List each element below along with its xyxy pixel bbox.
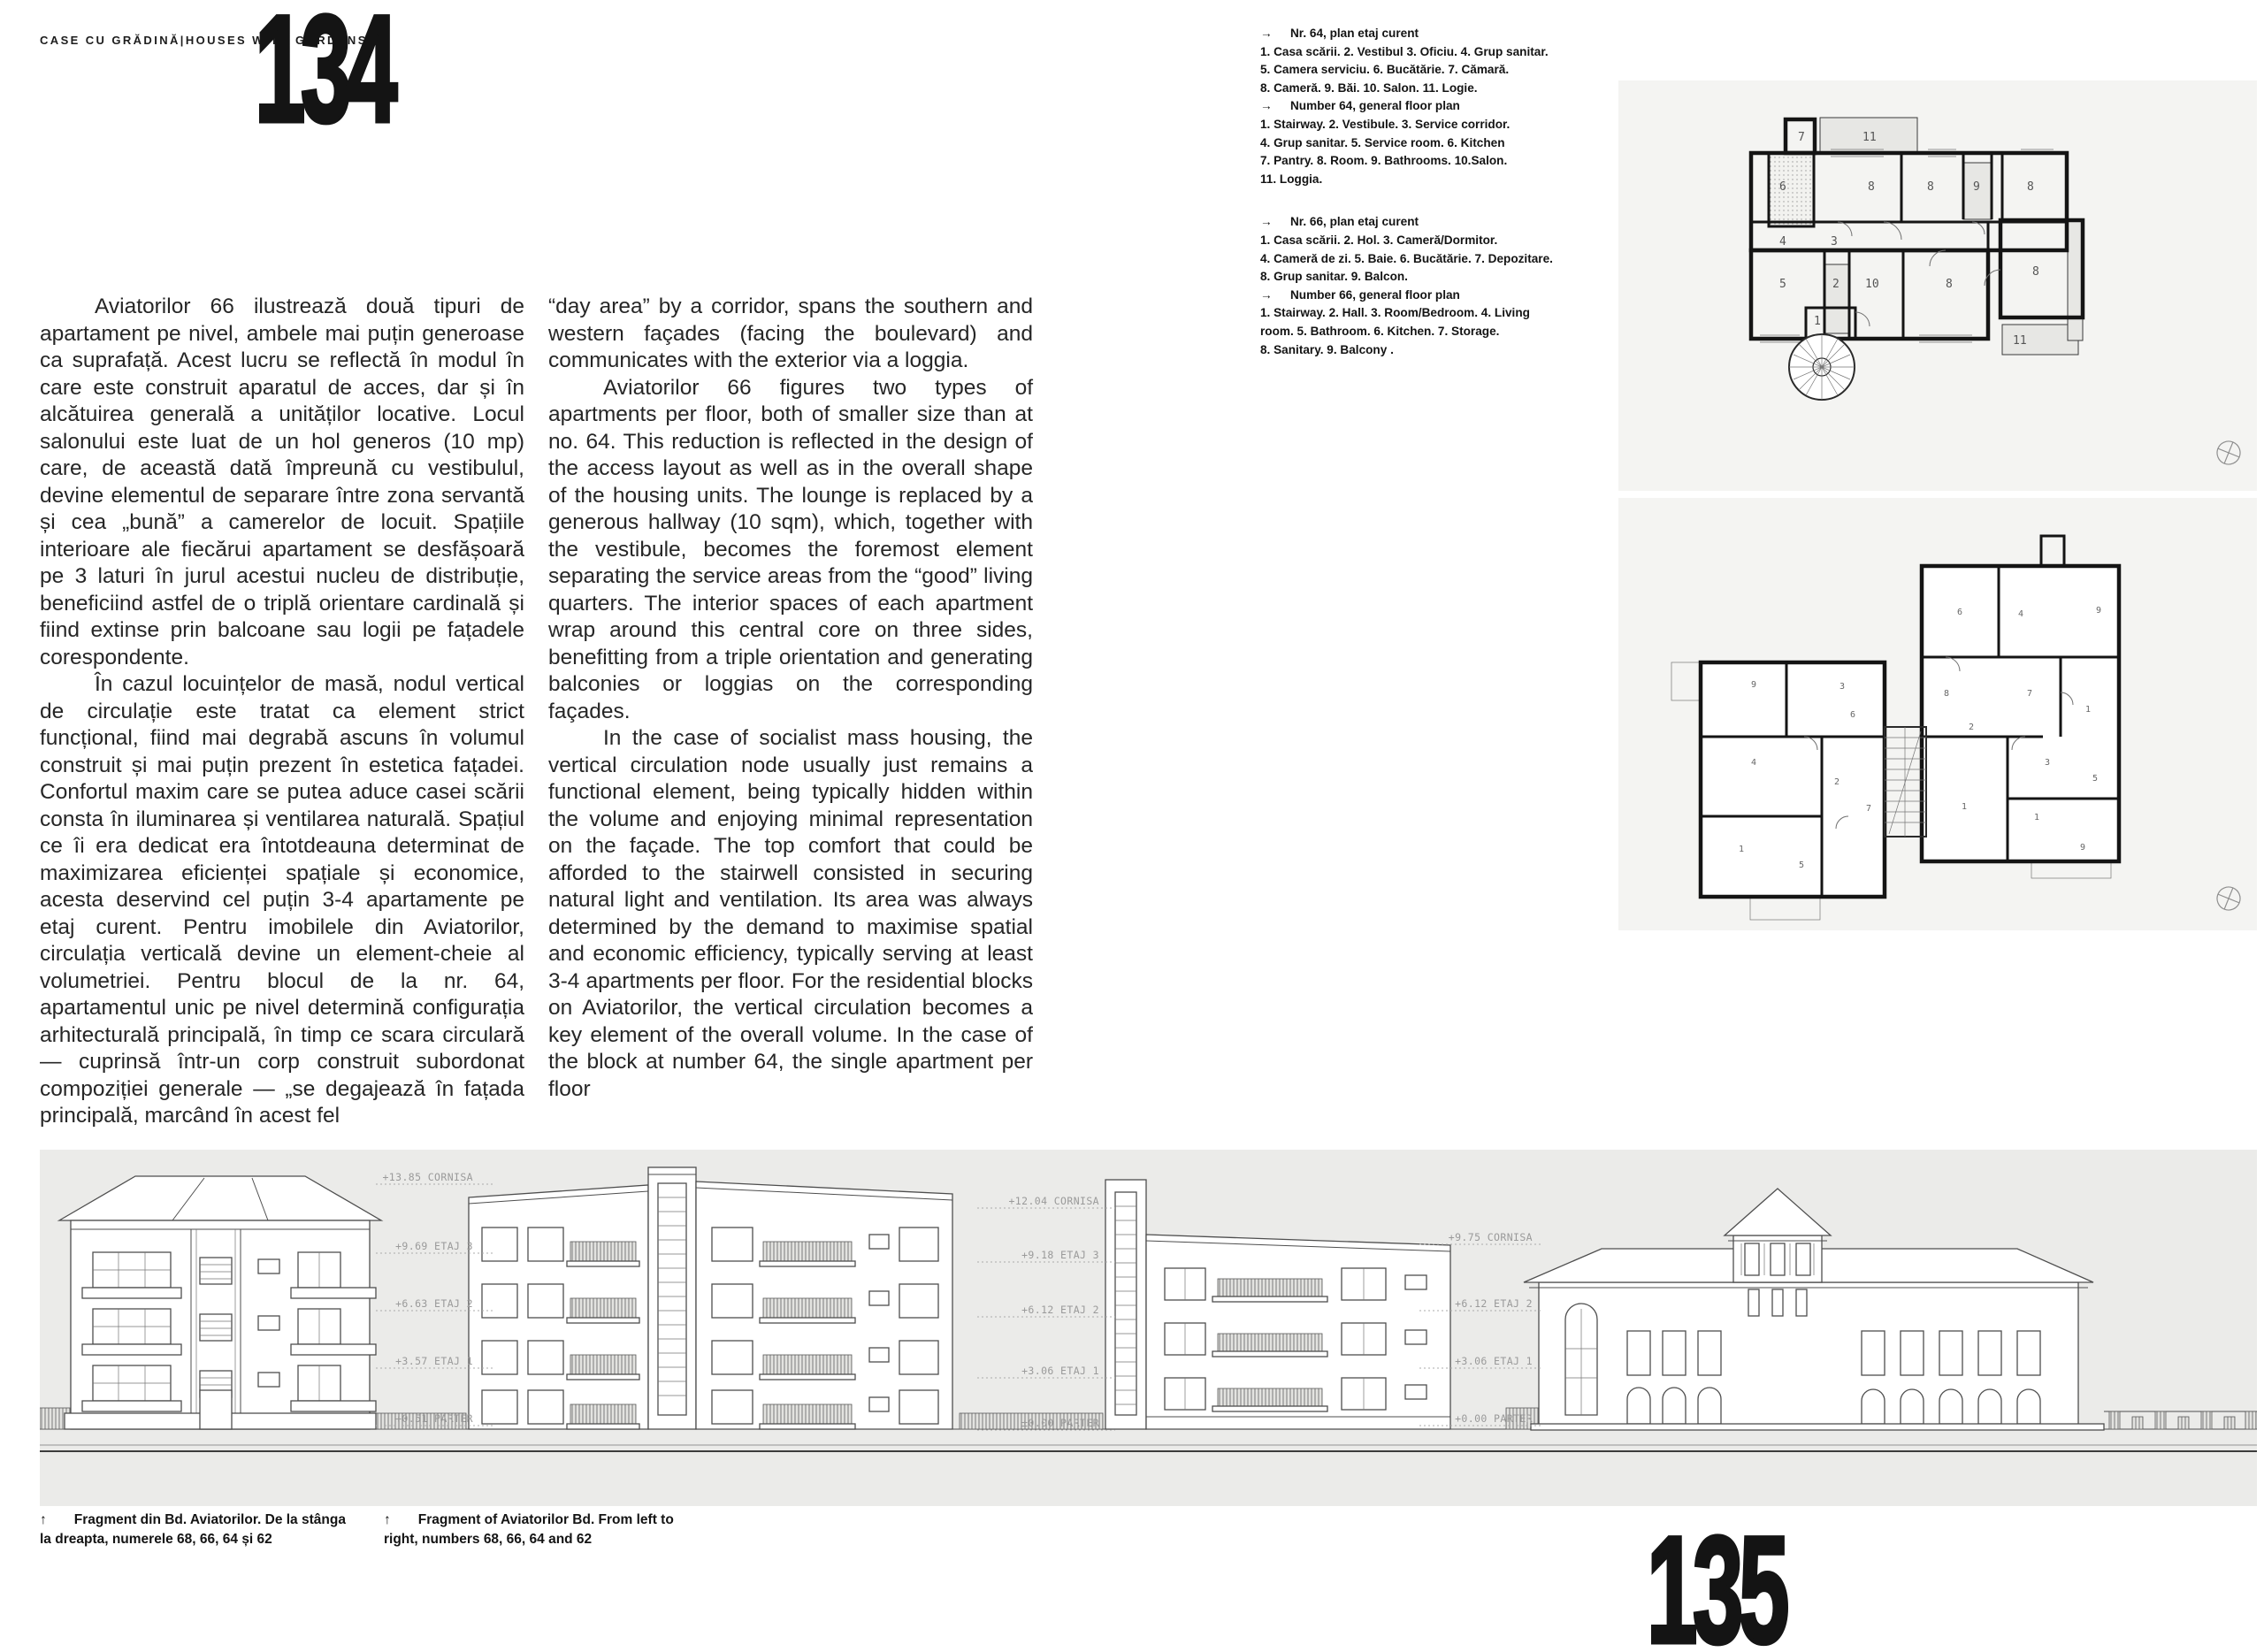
- room-number: 4: [1779, 235, 1786, 249]
- caption-line: la dreapta, numerele 68, 66, 64 și 62: [40, 1530, 395, 1549]
- level-labels-64: +12.04 CORNISA +9.18 ETAJ 3 +6.12 ETAJ 2…: [977, 1195, 1115, 1430]
- room-2-tint: [1824, 264, 1849, 333]
- svg-text:+6.12 ETAJ 2: +6.12 ETAJ 2: [1455, 1297, 1533, 1310]
- svg-text:+0.51 PARTER: +0.51 PARTER: [395, 1412, 473, 1425]
- building-62: [1524, 1189, 2104, 1430]
- room-number: 2: [1832, 278, 1839, 291]
- figure-caption-romanian: ↑ Fragment din Bd. Aviatorilor. De la st…: [40, 1511, 395, 1549]
- legend-line: → Nr. 66, plan etaj curent: [1260, 213, 1607, 232]
- room-number: 7: [2027, 689, 2032, 699]
- floor-plan-64-panel: 7 11 6 8 8 9 8 4 3 5 2 10 8 8 1 11: [1618, 80, 2257, 491]
- room-number: 5: [1799, 860, 1804, 870]
- text-column-english: “day area” by a corridor, spans the sout…: [548, 294, 1033, 1103]
- ground-arched-doors: [1627, 1388, 1721, 1424]
- svg-text:±0.00 PARTER: ±0.00 PARTER: [1021, 1417, 1099, 1429]
- room-number: 8: [1944, 689, 1949, 699]
- loggia-strip-right: [2068, 220, 2083, 340]
- north-compass-icon: [2214, 883, 2244, 914]
- legend-line: 8. Cameră. 9. Băi. 10. Salon. 11. Logie.: [1260, 80, 1607, 98]
- room-number: 6: [1850, 710, 1855, 720]
- balcony: [1671, 662, 1701, 700]
- legend-plan-64: → Nr. 64, plan etaj curent1. Casa scării…: [1260, 25, 1607, 188]
- room-number: 6: [1957, 608, 1962, 617]
- room-number: 8: [1868, 180, 1875, 194]
- room-number: 9: [2080, 843, 2085, 853]
- balcony: [1750, 897, 1820, 920]
- legend-line: 4. Cameră de zi. 5. Baie. 6. Bucătărie. …: [1260, 250, 1607, 269]
- page-number-135: 135: [1647, 1514, 1785, 1652]
- svg-text:+9.18 ETAJ 3: +9.18 ETAJ 3: [1021, 1249, 1099, 1261]
- room-number: 11: [2013, 334, 2027, 348]
- elevation-drawing: +13.85 CORNISA +9.69 ETAJ 3 +6.63 ETAJ 2…: [40, 1150, 2257, 1506]
- legend-line: 1. Stairway. 2. Hall. 3. Room/Bedroom. 4…: [1260, 304, 1607, 323]
- caption-line: right, numbers 68, 66, 64 and 62: [384, 1530, 730, 1549]
- svg-text:+3.06 ETAJ 1: +3.06 ETAJ 1: [1455, 1355, 1533, 1367]
- svg-text:+9.69 ETAJ 3: +9.69 ETAJ 3: [395, 1240, 473, 1252]
- room-number: 1: [1962, 802, 1967, 812]
- room-number: 8: [2027, 180, 2034, 194]
- north-compass-icon: [2214, 438, 2244, 468]
- book-spread: CASE CU GRĂDINĂ|HOUSES WITH GARDENS 134 …: [0, 0, 2264, 1652]
- floor-plan-66-panel: 6 4 9 8 7 1 2 3 1 1 5 9 9 3 4 6 2 7 1 5: [1618, 498, 2257, 930]
- floor-plan-66-drawing: 6 4 9 8 7 1 2 3 1 1 5 9 9 3 4 6 2 7 1 5: [1618, 498, 2257, 930]
- room-number: 10: [1865, 278, 1879, 291]
- legend-line: room. 5. Bathroom. 6. Kitchen. 7. Storag…: [1260, 323, 1607, 341]
- room-number: 8: [2032, 265, 2039, 279]
- legend-line: → Number 64, general floor plan: [1260, 97, 1607, 116]
- left-wing-walls: [1701, 662, 1885, 897]
- room-number: 11: [1862, 131, 1877, 144]
- tower-windows: [1741, 1243, 1814, 1275]
- room-number: 6: [1779, 180, 1786, 194]
- room-number: 8: [1927, 180, 1934, 194]
- legend-line: → Nr. 64, plan etaj curent: [1260, 25, 1607, 43]
- room-number: 1: [2085, 705, 2091, 715]
- caption-line: ↑ Fragment din Bd. Aviatorilor. De la st…: [40, 1511, 395, 1530]
- svg-text:+9.75 CORNISA: +9.75 CORNISA: [1449, 1231, 1533, 1243]
- elevation-panel: +13.85 CORNISA +9.69 ETAJ 3 +6.63 ETAJ 2…: [40, 1150, 2257, 1506]
- paragraph: În cazul locuințelor de masă, nodul vert…: [40, 671, 524, 1130]
- room-number: 3: [1839, 682, 1845, 692]
- room-number: 4: [2018, 609, 2023, 619]
- room-number: 3: [2045, 758, 2050, 768]
- page-number-134: 134: [255, 0, 393, 145]
- building-66: [469, 1167, 952, 1429]
- garden-fence: [2104, 1411, 2257, 1429]
- spiral-stair: [1789, 334, 1855, 400]
- room-number: 1: [2034, 813, 2039, 822]
- text-column-romanian: Aviatorilor 66 ilustrează două tipuri de…: [40, 294, 524, 1130]
- paragraph: Aviatorilor 66 figures two types of apar…: [548, 375, 1033, 726]
- room-number: 9: [2096, 606, 2101, 616]
- legend-line: 11. Loggia.: [1260, 171, 1607, 189]
- room-number: 9: [1973, 180, 1980, 194]
- plan-legends: → Nr. 64, plan etaj curent1. Casa scării…: [1260, 25, 1607, 384]
- svg-text:+12.04 CORNISA: +12.04 CORNISA: [1008, 1195, 1099, 1207]
- svg-text:+3.57 ETAJ 1: +3.57 ETAJ 1: [395, 1355, 473, 1367]
- room-number: 1: [1739, 845, 1744, 854]
- building-68: [59, 1176, 381, 1429]
- legend-line: 8. Sanitary. 9. Balcony .: [1260, 341, 1607, 360]
- legend-line: 8. Grup sanitar. 9. Balcon.: [1260, 268, 1607, 287]
- room-number: 7: [1866, 804, 1871, 814]
- legend-line: 5. Camera serviciu. 6. Bucătărie. 7. Căm…: [1260, 61, 1607, 80]
- legend-plan-66: → Nr. 66, plan etaj curent1. Casa scării…: [1260, 213, 1607, 359]
- room-number: 2: [1834, 777, 1839, 787]
- svg-text:+3.06 ETAJ 1: +3.06 ETAJ 1: [1021, 1365, 1099, 1377]
- paragraph: Aviatorilor 66 ilustrează două tipuri de…: [40, 294, 524, 671]
- legend-line: 7. Pantry. 8. Room. 9. Bathrooms. 10.Sal…: [1260, 152, 1607, 171]
- legend-line: 1. Casa scării. 2. Hol. 3. Cameră/Dormit…: [1260, 232, 1607, 250]
- room-6-hatch: [1769, 153, 1814, 226]
- room-number: 9: [1751, 680, 1756, 690]
- caption-line: ↑ Fragment of Aviatorilor Bd. From left …: [384, 1511, 730, 1530]
- paragraph: “day area” by a corridor, spans the sout…: [548, 294, 1033, 375]
- chimney: [2041, 536, 2064, 566]
- legend-line: 1. Casa scării. 2. Vestibul 3. Oficiu. 4…: [1260, 43, 1607, 62]
- room-number: 3: [1831, 235, 1838, 249]
- figure-caption-english: ↑ Fragment of Aviatorilor Bd. From left …: [384, 1511, 730, 1549]
- room-number: 5: [1779, 278, 1786, 291]
- svg-text:+6.63 ETAJ 2: +6.63 ETAJ 2: [395, 1297, 473, 1310]
- room-number: 1: [1814, 315, 1821, 328]
- under-tower-slits: [1748, 1289, 1807, 1316]
- room-number: 2: [1969, 723, 1974, 732]
- room-number: 7: [1798, 131, 1805, 144]
- legend-line: 4. Grup sanitar. 5. Service room. 6. Kit…: [1260, 134, 1607, 153]
- legend-line: → Number 66, general floor plan: [1260, 287, 1607, 305]
- room-number: 4: [1751, 758, 1756, 768]
- svg-text:+13.85 CORNISA: +13.85 CORNISA: [382, 1171, 473, 1183]
- interior-walls-lower: [1751, 222, 2067, 339]
- building-64: [1105, 1180, 1450, 1429]
- door-swings: [1838, 222, 2000, 326]
- legend-line: 1. Stairway. 2. Vestibule. 3. Service co…: [1260, 116, 1607, 134]
- room-number: 8: [1946, 278, 1953, 291]
- room-number: 5: [2092, 774, 2098, 784]
- svg-text:+0.00 PARTER: +0.00 PARTER: [1455, 1412, 1533, 1425]
- svg-text:+6.12 ETAJ 2: +6.12 ETAJ 2: [1021, 1304, 1099, 1316]
- paragraph: In the case of socialist mass housing, t…: [548, 725, 1033, 1103]
- floor-plan-64-drawing: 7 11 6 8 8 9 8 4 3 5 2 10 8 8 1 11: [1618, 80, 2257, 491]
- mid-windows: [1627, 1331, 1721, 1375]
